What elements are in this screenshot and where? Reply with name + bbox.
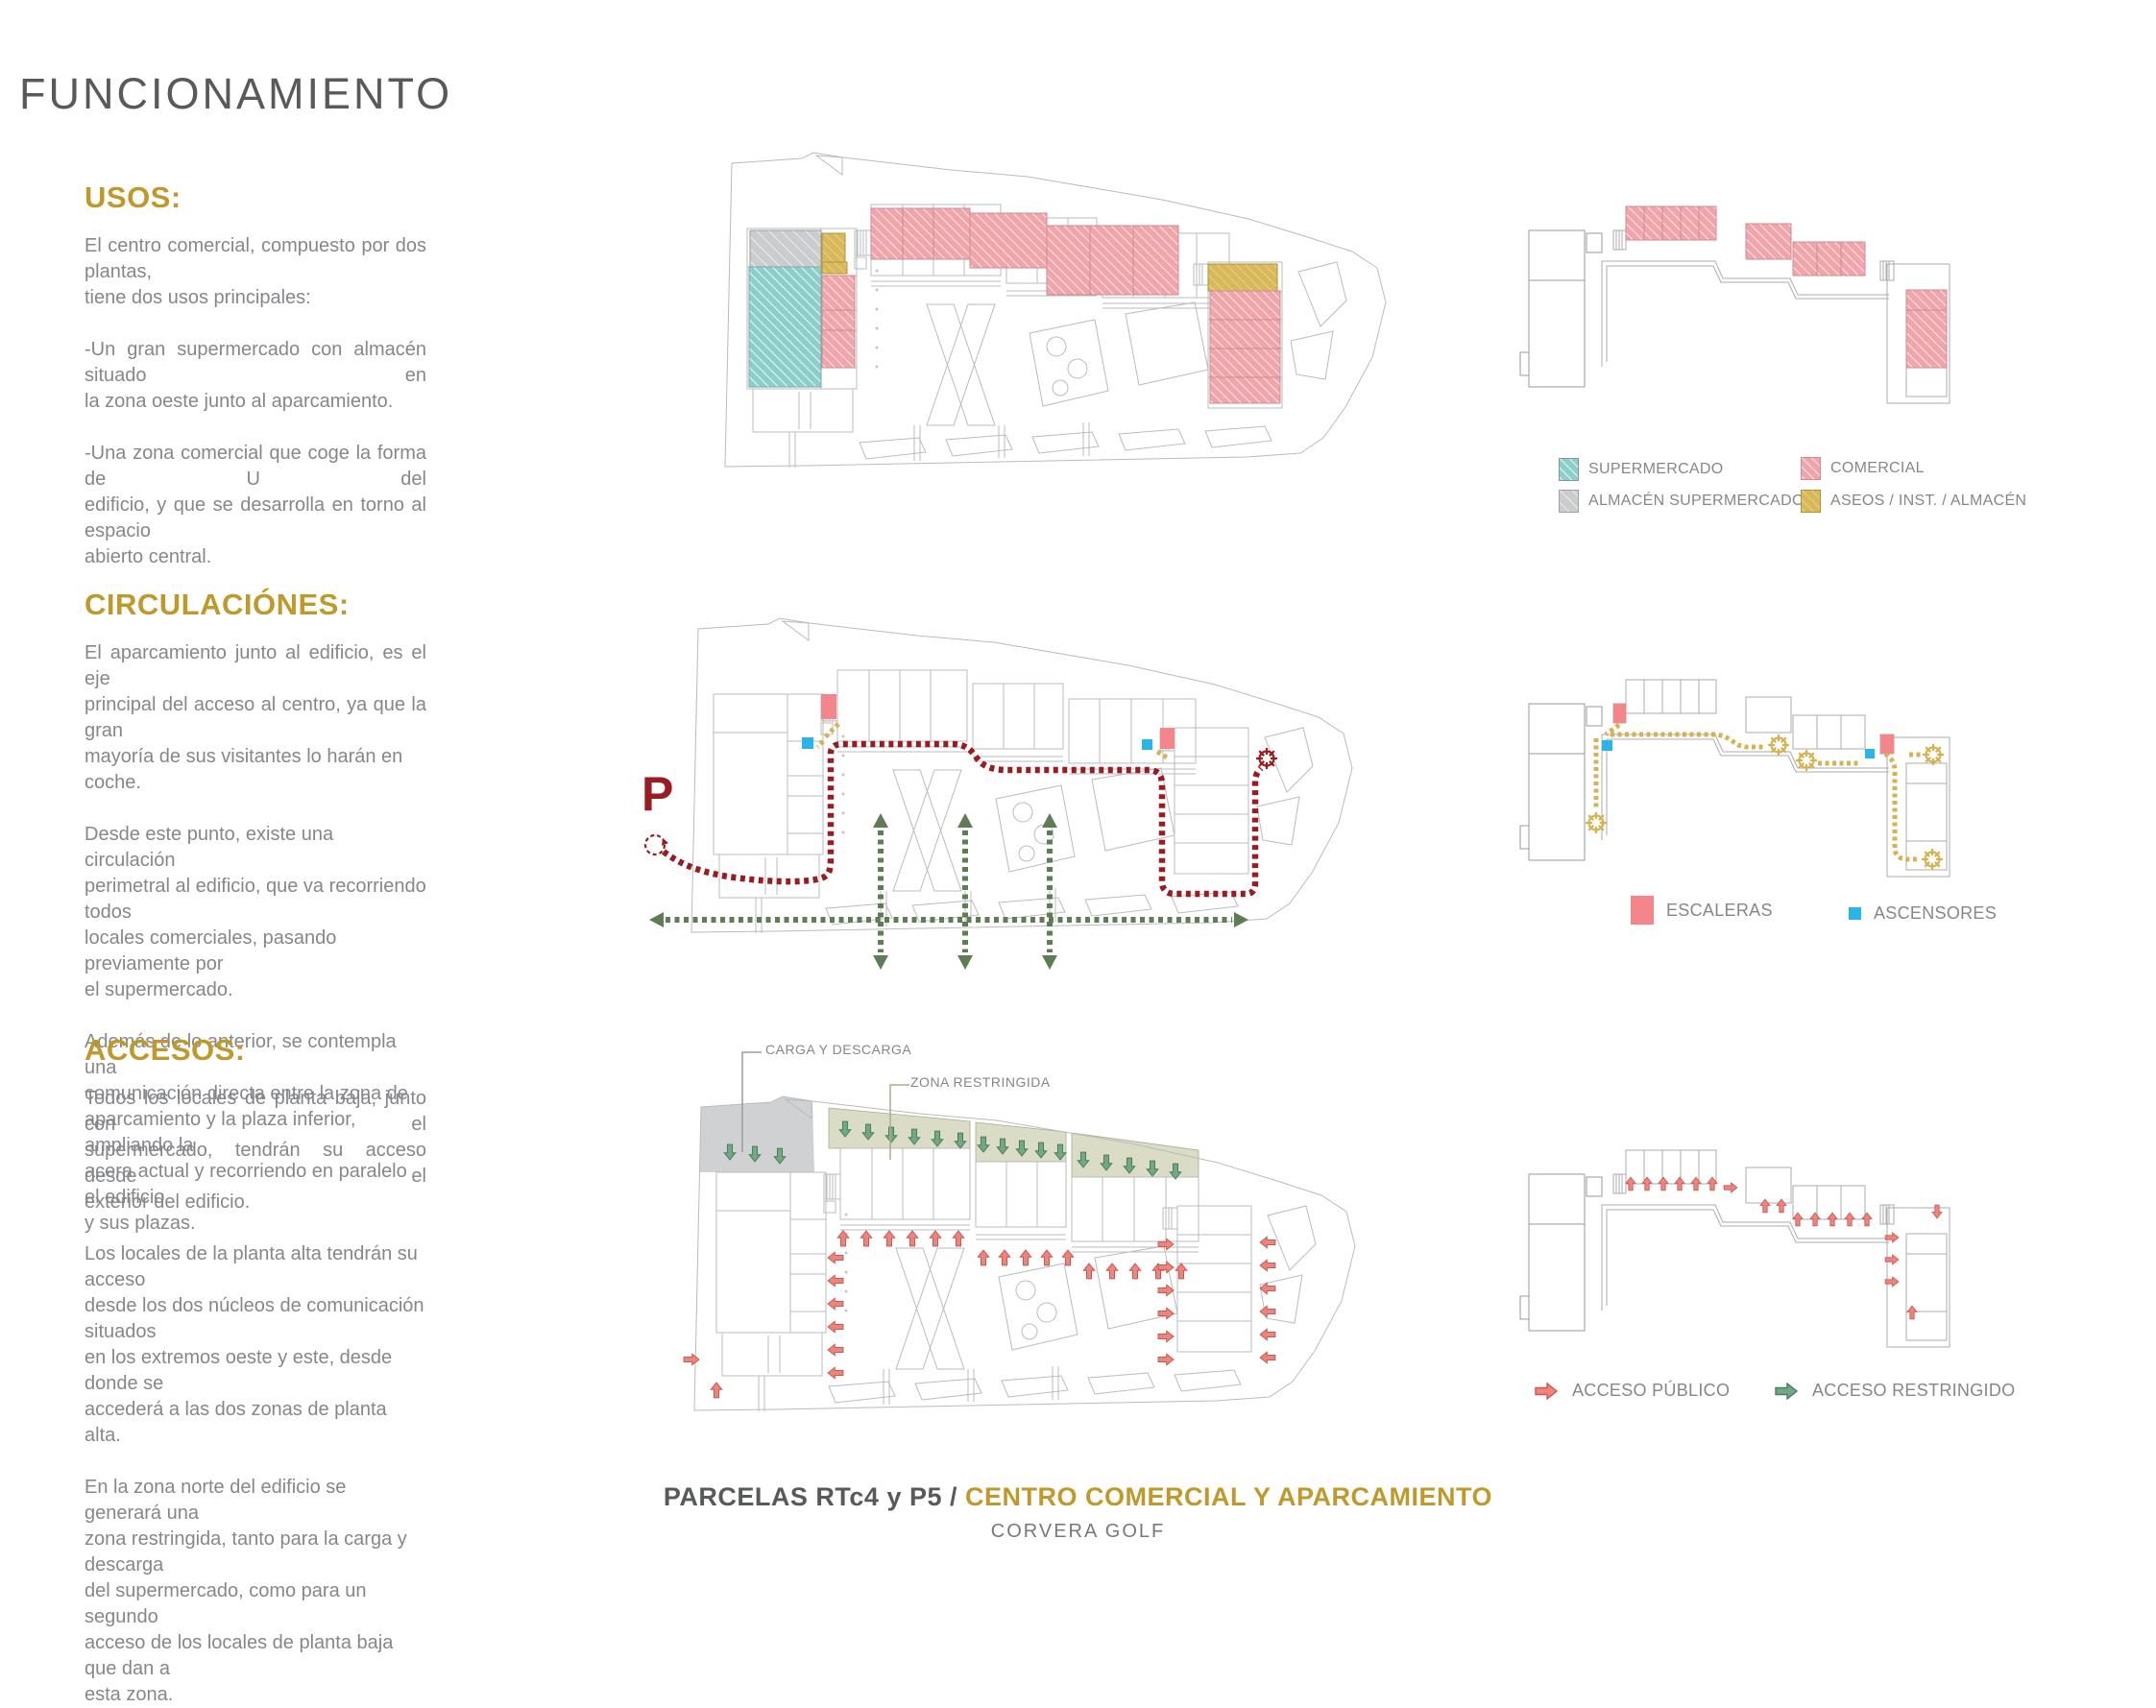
page-title: FUNCIONAMIENTO: [19, 69, 452, 119]
almacen-swatch: [1559, 490, 1579, 513]
text-line: accederá a las dos zonas de planta alta.: [85, 1397, 426, 1449]
aseos-swatch: [1801, 490, 1821, 513]
paragraph: Los locales de la planta alta tendrán su…: [85, 1241, 426, 1449]
plan-accesos-ground-floor: [610, 1037, 1369, 1440]
text-line: exterior del edificio.: [85, 1190, 426, 1215]
legend-label: ALMACÉN SUPERMERCADO: [1588, 493, 1805, 510]
paragraph: Desde este punto, existe una circulación…: [85, 822, 426, 1003]
text-line: Todos los locales de planta baja, junto …: [85, 1086, 426, 1138]
text-line: El centro comercial, compuesto por dos p…: [85, 233, 426, 285]
legend-label: COMERCIAL: [1830, 460, 1925, 477]
presentation-board: { "page": { "title": "FUNCIONAMIENTO" },…: [0, 0, 2156, 1617]
section-heading-accesos: ACCESOS:: [85, 1033, 426, 1068]
zona-restringida-label: ZONA RESTRINGIDA: [910, 1074, 1051, 1090]
paragraph: El centro comercial, compuesto por dos p…: [85, 233, 426, 311]
vertical-core-spiral: [1256, 748, 1277, 769]
acceso-restringido-arrow-icon: [1775, 1383, 1800, 1400]
upper-commercial-zones: [1626, 206, 1947, 368]
stairs-marker: [1880, 734, 1894, 754]
text-line: Los locales de la planta alta tendrán su…: [85, 1241, 426, 1293]
plan-circulaciones-upper-floor: [1517, 617, 1959, 896]
plan-usos-upper-floor: [1517, 144, 1959, 422]
text-line: mayoría de sus visitantes lo harán en co…: [85, 744, 426, 796]
paragraph: -Una zona comercial que coge la forma de…: [85, 441, 426, 570]
public-access-arrows: [684, 1231, 1275, 1398]
paragraph: -Un gran supermercado con almacén situad…: [85, 337, 426, 415]
legend-escaleras: ESCALERAS: [1631, 896, 1773, 925]
legend-label: ACCESO RESTRINGIDO: [1812, 1381, 2015, 1401]
paragraph: Todos los locales de planta baja, junto …: [85, 1086, 426, 1215]
services-zone-west: [822, 233, 847, 274]
footer-subtitle: CORVERA GOLF: [0, 1521, 2156, 1543]
legend-label: ESCALERAS: [1666, 901, 1773, 921]
text-line: en los extremos oeste y este, desde dond…: [85, 1345, 426, 1397]
text-line: edificio, y que se desarrolla en torno a…: [85, 493, 426, 544]
section-heading-circulaciones: CIRCULACIÓNES:: [85, 588, 426, 622]
commercial-zone-east: [1210, 291, 1280, 403]
comercial-swatch: [1801, 457, 1821, 480]
zona-restringida-band: [829, 1108, 1199, 1177]
text-line: acceso de los locales de planta baja que…: [85, 1630, 426, 1682]
legend-comercial: COMERCIAL: [1801, 457, 1925, 480]
section-accesos: ACCESOS: Todos los locales de planta baj…: [85, 1033, 426, 1708]
elevator-marker: [1602, 740, 1612, 751]
text-line: supermercado, tendrán su acceso desde el: [85, 1138, 426, 1190]
text-line: Desde este punto, existe una circulación: [85, 822, 426, 874]
services-zone-east: [1208, 264, 1277, 291]
legend-ascensores: ASCENSORES: [1849, 903, 1997, 924]
plan-usos-ground-floor: [711, 149, 1393, 475]
paragraph: El aparcamiento junto al edificio, es el…: [85, 640, 426, 796]
plan-circulaciones-ground-floor: [610, 605, 1369, 1008]
legend-label: SUPERMERCADO: [1588, 461, 1724, 478]
legend-acceso-restringido: ACCESO RESTRINGIDO: [1775, 1381, 2015, 1401]
section-heading-usos: USOS:: [85, 180, 426, 215]
text-line: del supermercado, como para un segundo: [85, 1578, 426, 1630]
footer-parcel-text: PARCELAS RTc4 y P5 /: [664, 1482, 957, 1511]
stairs-marker: [1160, 728, 1175, 749]
text-line: esta zona.: [85, 1682, 426, 1708]
text-line: tiene dos usos principales:: [85, 285, 426, 311]
elevator-marker: [802, 737, 813, 749]
legend-almacen: ALMACÉN SUPERMERCADO: [1559, 490, 1805, 513]
legend-aseos: ASEOS / INST. / ALMACÉN: [1801, 490, 2026, 513]
text-line: el supermercado.: [85, 977, 426, 1003]
legend-acceso-publico: ACCESO PÚBLICO: [1535, 1381, 1730, 1401]
text-line: abierto central.: [85, 544, 426, 570]
footer-project-text: CENTRO COMERCIAL Y APARCAMIENTO: [965, 1482, 1492, 1511]
carga-descarga-label: CARGA Y DESCARGA: [765, 1042, 911, 1057]
section-body-accesos: Todos los locales de planta baja, junto …: [85, 1086, 426, 1708]
text-line: El aparcamiento junto al edificio, es el…: [85, 640, 426, 692]
ascensores-swatch: [1849, 907, 1861, 920]
stairs-marker: [1613, 704, 1626, 723]
legend-label: ASCENSORES: [1874, 903, 1997, 924]
legend-supermercado: SUPERMERCADO: [1559, 458, 1724, 481]
commercial-zone-west: [822, 276, 855, 368]
text-line: -Un gran supermercado con almacén situad…: [85, 337, 426, 389]
supermercado-swatch: [1559, 458, 1579, 481]
text-line: desde los dos núcleos de comunicación si…: [85, 1293, 426, 1345]
text-line: -Una zona comercial que coge la forma de…: [85, 441, 426, 493]
elevator-marker: [1142, 739, 1152, 750]
elevator-marker: [1865, 749, 1875, 758]
text-line: locales comerciales, pasando previamente…: [85, 926, 426, 977]
footer-title: PARCELAS RTc4 y P5 / CENTRO COMERCIAL Y …: [0, 1482, 2156, 1512]
escaleras-swatch: [1631, 896, 1654, 925]
footer: PARCELAS RTc4 y P5 / CENTRO COMERCIAL Y …: [0, 1482, 2156, 1543]
public-access-arrows-upper: [1626, 1177, 1942, 1319]
text-line: principal del acceso al centro, ya que l…: [85, 692, 426, 744]
plan-accesos-upper-floor: [1517, 1088, 1959, 1366]
legend-label: ASEOS / INST. / ALMACÉN: [1830, 493, 2026, 510]
acceso-publico-arrow-icon: [1535, 1383, 1560, 1400]
parking-symbol: P: [642, 766, 673, 822]
storage-zone: [750, 230, 821, 267]
section-body-usos: El centro comercial, compuesto por dos p…: [85, 233, 426, 570]
text-line: perimetral al edificio, que va recorrien…: [85, 874, 426, 926]
stairs-marker: [821, 694, 836, 719]
section-usos: USOS: El centro comercial, compuesto por…: [85, 180, 426, 570]
supermarket-zone: [749, 267, 821, 387]
text-line: la zona oeste junto al aparcamiento.: [85, 389, 426, 415]
legend-label: ACCESO PÚBLICO: [1572, 1381, 1730, 1401]
